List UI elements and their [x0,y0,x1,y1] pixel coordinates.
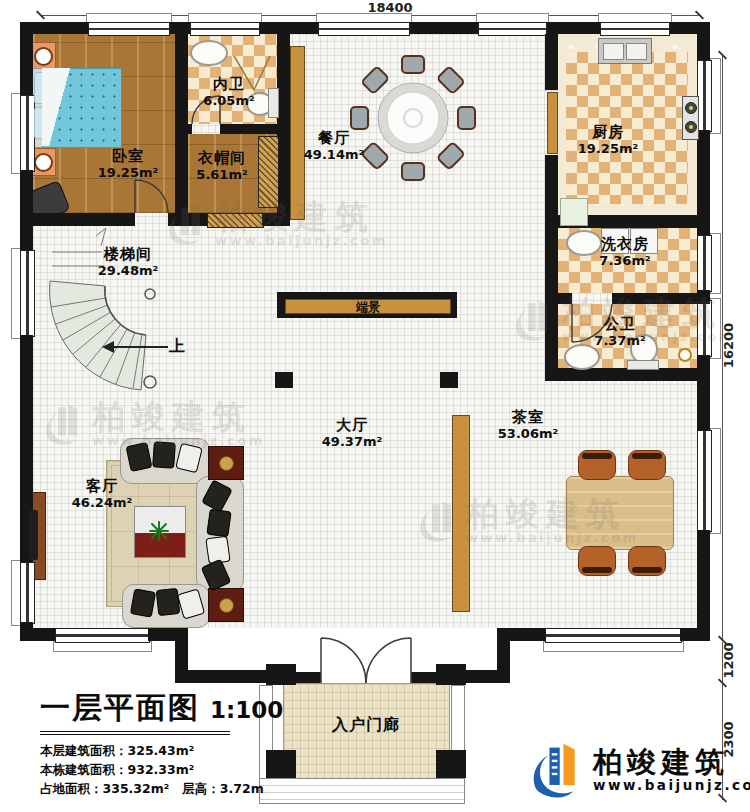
kitchen-sink [598,38,652,64]
side-table [208,588,244,622]
room-name: 内卫 [203,76,254,93]
room-label-cloakroom: 衣帽间 5.61m² [196,150,247,182]
wall-segment [20,22,33,95]
wall-segment [697,530,710,641]
company-website: www.baijunjz.com [593,777,750,793]
wall-segment [20,170,33,250]
floor-drain [678,348,692,362]
wall-segment [33,213,135,226]
dimension-right-mid: 1200 [721,621,736,701]
room-area: 46.24m² [72,495,132,510]
window [697,300,712,357]
room-label-public-bath: 公卫 7.37m² [594,316,645,348]
room-area: 49.37m² [322,434,382,449]
room-label-bedroom: 卧室 19.25m² [98,148,158,180]
wall-segment [408,22,478,34]
column [440,372,458,388]
room-label-living-room: 客厅 46.24m² [72,478,132,510]
cloakroom-shelf [258,136,279,208]
sink [190,40,228,66]
sofa-cushion [130,588,156,617]
wall-segment [175,670,273,683]
sink-basin [603,43,624,60]
window [190,22,260,36]
wall-segment [220,124,277,134]
wall-segment [697,22,710,60]
room-area: 53.06m² [498,426,558,441]
stairs-up-label: 上 [169,336,185,357]
laundry-sink [566,230,602,256]
room-name: 大厅 [322,417,382,434]
window [545,628,682,643]
lamp-icon [34,153,53,172]
wall-segment [545,293,572,304]
room-area: 5.61m² [196,167,247,182]
cloakroom-wardrobe [207,213,264,228]
room-label-kitchen: 厨房 19.25m² [578,124,638,156]
window [697,430,712,532]
window [697,235,712,292]
wall-segment [497,628,510,683]
title-underline [40,731,230,735]
sink-basin [626,43,647,60]
room-label-stairwell: 楼梯间 29.48m² [98,246,158,278]
wall-segment [168,22,190,34]
stat-footprint-height: 占地面积：335.32m² 层高：3.72m [40,779,283,798]
window [20,562,35,624]
stove [682,96,699,140]
wall-segment [296,672,321,683]
window [55,628,150,643]
window [20,250,35,337]
tea-chair [578,450,616,480]
room-name: 洗衣房 [599,236,650,253]
chair-back [582,453,612,459]
window [600,22,670,36]
stat-building-area: 本栋建筑面积：932.33m² [40,760,283,779]
sofa-cushion [152,441,176,468]
toilet-tank [268,88,279,118]
wall-segment [612,293,710,304]
room-area: 6.05m² [203,93,254,108]
end-view-label: 端景 [356,299,380,316]
company-logo-icon [528,740,584,800]
wall-segment [258,22,318,34]
tea-chair [628,546,666,576]
chair-back [632,453,662,459]
tea-table [566,476,674,550]
dimension-right-upper: 16200 [721,306,736,386]
room-label-hall: 大厅 49.37m² [322,417,382,449]
wall-segment [186,124,192,134]
tv [29,510,38,560]
wall-segment [20,628,55,641]
room-name: 餐厅 [304,130,364,147]
room-label-dining: 餐厅 49.14m² [304,130,364,162]
lamp-icon [34,47,53,66]
room-label-porch: 入户门廊 [332,716,400,733]
title-block: 一层平面图1:100 本层建筑面积：325.43m² 本栋建筑面积：932.33… [40,688,283,798]
plan-scale: 1:100 [210,697,283,723]
side-table [208,446,244,480]
plan-title-row: 一层平面图1:100 [40,688,283,729]
decor-icon [219,598,234,613]
room-area: 49.14m² [304,147,364,162]
room-name: 卧室 [98,148,158,165]
decor-icon [219,456,234,471]
window [318,22,410,36]
room-name: 厨房 [578,124,638,141]
tea-room-partition [452,415,470,612]
porch-column [266,664,296,685]
room-label-inner-bath: 内卫 6.05m² [203,76,254,108]
room-area: 19.25m² [98,165,158,180]
room-area: 7.37m² [594,333,645,348]
porch-column [436,750,466,778]
toilet-base [627,360,659,370]
sofa-cushion [156,588,181,616]
fridge [560,198,588,226]
chair-back [582,567,612,573]
wall-segment [697,355,710,430]
room-area: 19.25m² [578,141,638,156]
company-name: 柏竣建筑 [593,747,750,777]
dining-sideboard [290,46,305,220]
porch-steps [259,778,465,804]
room-label-tea-room: 茶室 53.06m² [498,409,558,441]
room-name: 茶室 [498,409,558,426]
wall-segment [168,213,207,226]
wall-segment [510,628,545,641]
room-name: 楼梯间 [98,246,158,263]
chair-back [632,567,662,573]
room-label-laundry: 洗衣房 7.36m² [599,236,650,268]
nightstand [30,42,56,70]
coffee-table [134,506,186,558]
wall-segment [411,672,436,683]
wall-segment [545,22,600,34]
plan-title: 一层平面图 [40,688,200,729]
room-name: 衣帽间 [196,150,247,167]
room-name: 公卫 [594,316,645,333]
tea-chair [578,546,616,576]
room-name: 入户门廊 [332,716,400,733]
porch-column [436,664,466,685]
stat-floor-area: 本层建筑面积：325.43m² [40,741,283,760]
window [697,60,712,132]
company-logo-text: 柏竣建筑 www.baijunjz.com [593,747,750,793]
wall-segment [545,34,558,90]
room-area: 29.48m² [98,263,158,278]
window [478,22,547,36]
burner-icon [685,102,697,114]
window [20,95,35,172]
dimension-top: 18400 [350,0,430,15]
wall-segment [680,628,710,641]
burner-icon [685,121,697,133]
column [275,372,293,388]
company-logo: 柏竣建筑 www.baijunjz.com [528,740,750,800]
kitchen-sliding-door [547,92,558,154]
bed-sheet [42,68,82,146]
sofa-cushion [206,509,231,538]
room-name: 客厅 [72,478,132,495]
tea-chair [628,450,666,480]
room-area: 7.36m² [599,253,650,268]
window [88,22,170,36]
floor-plan-page: { "plan": { "title": "一层平面图", "scale": "… [0,0,750,812]
